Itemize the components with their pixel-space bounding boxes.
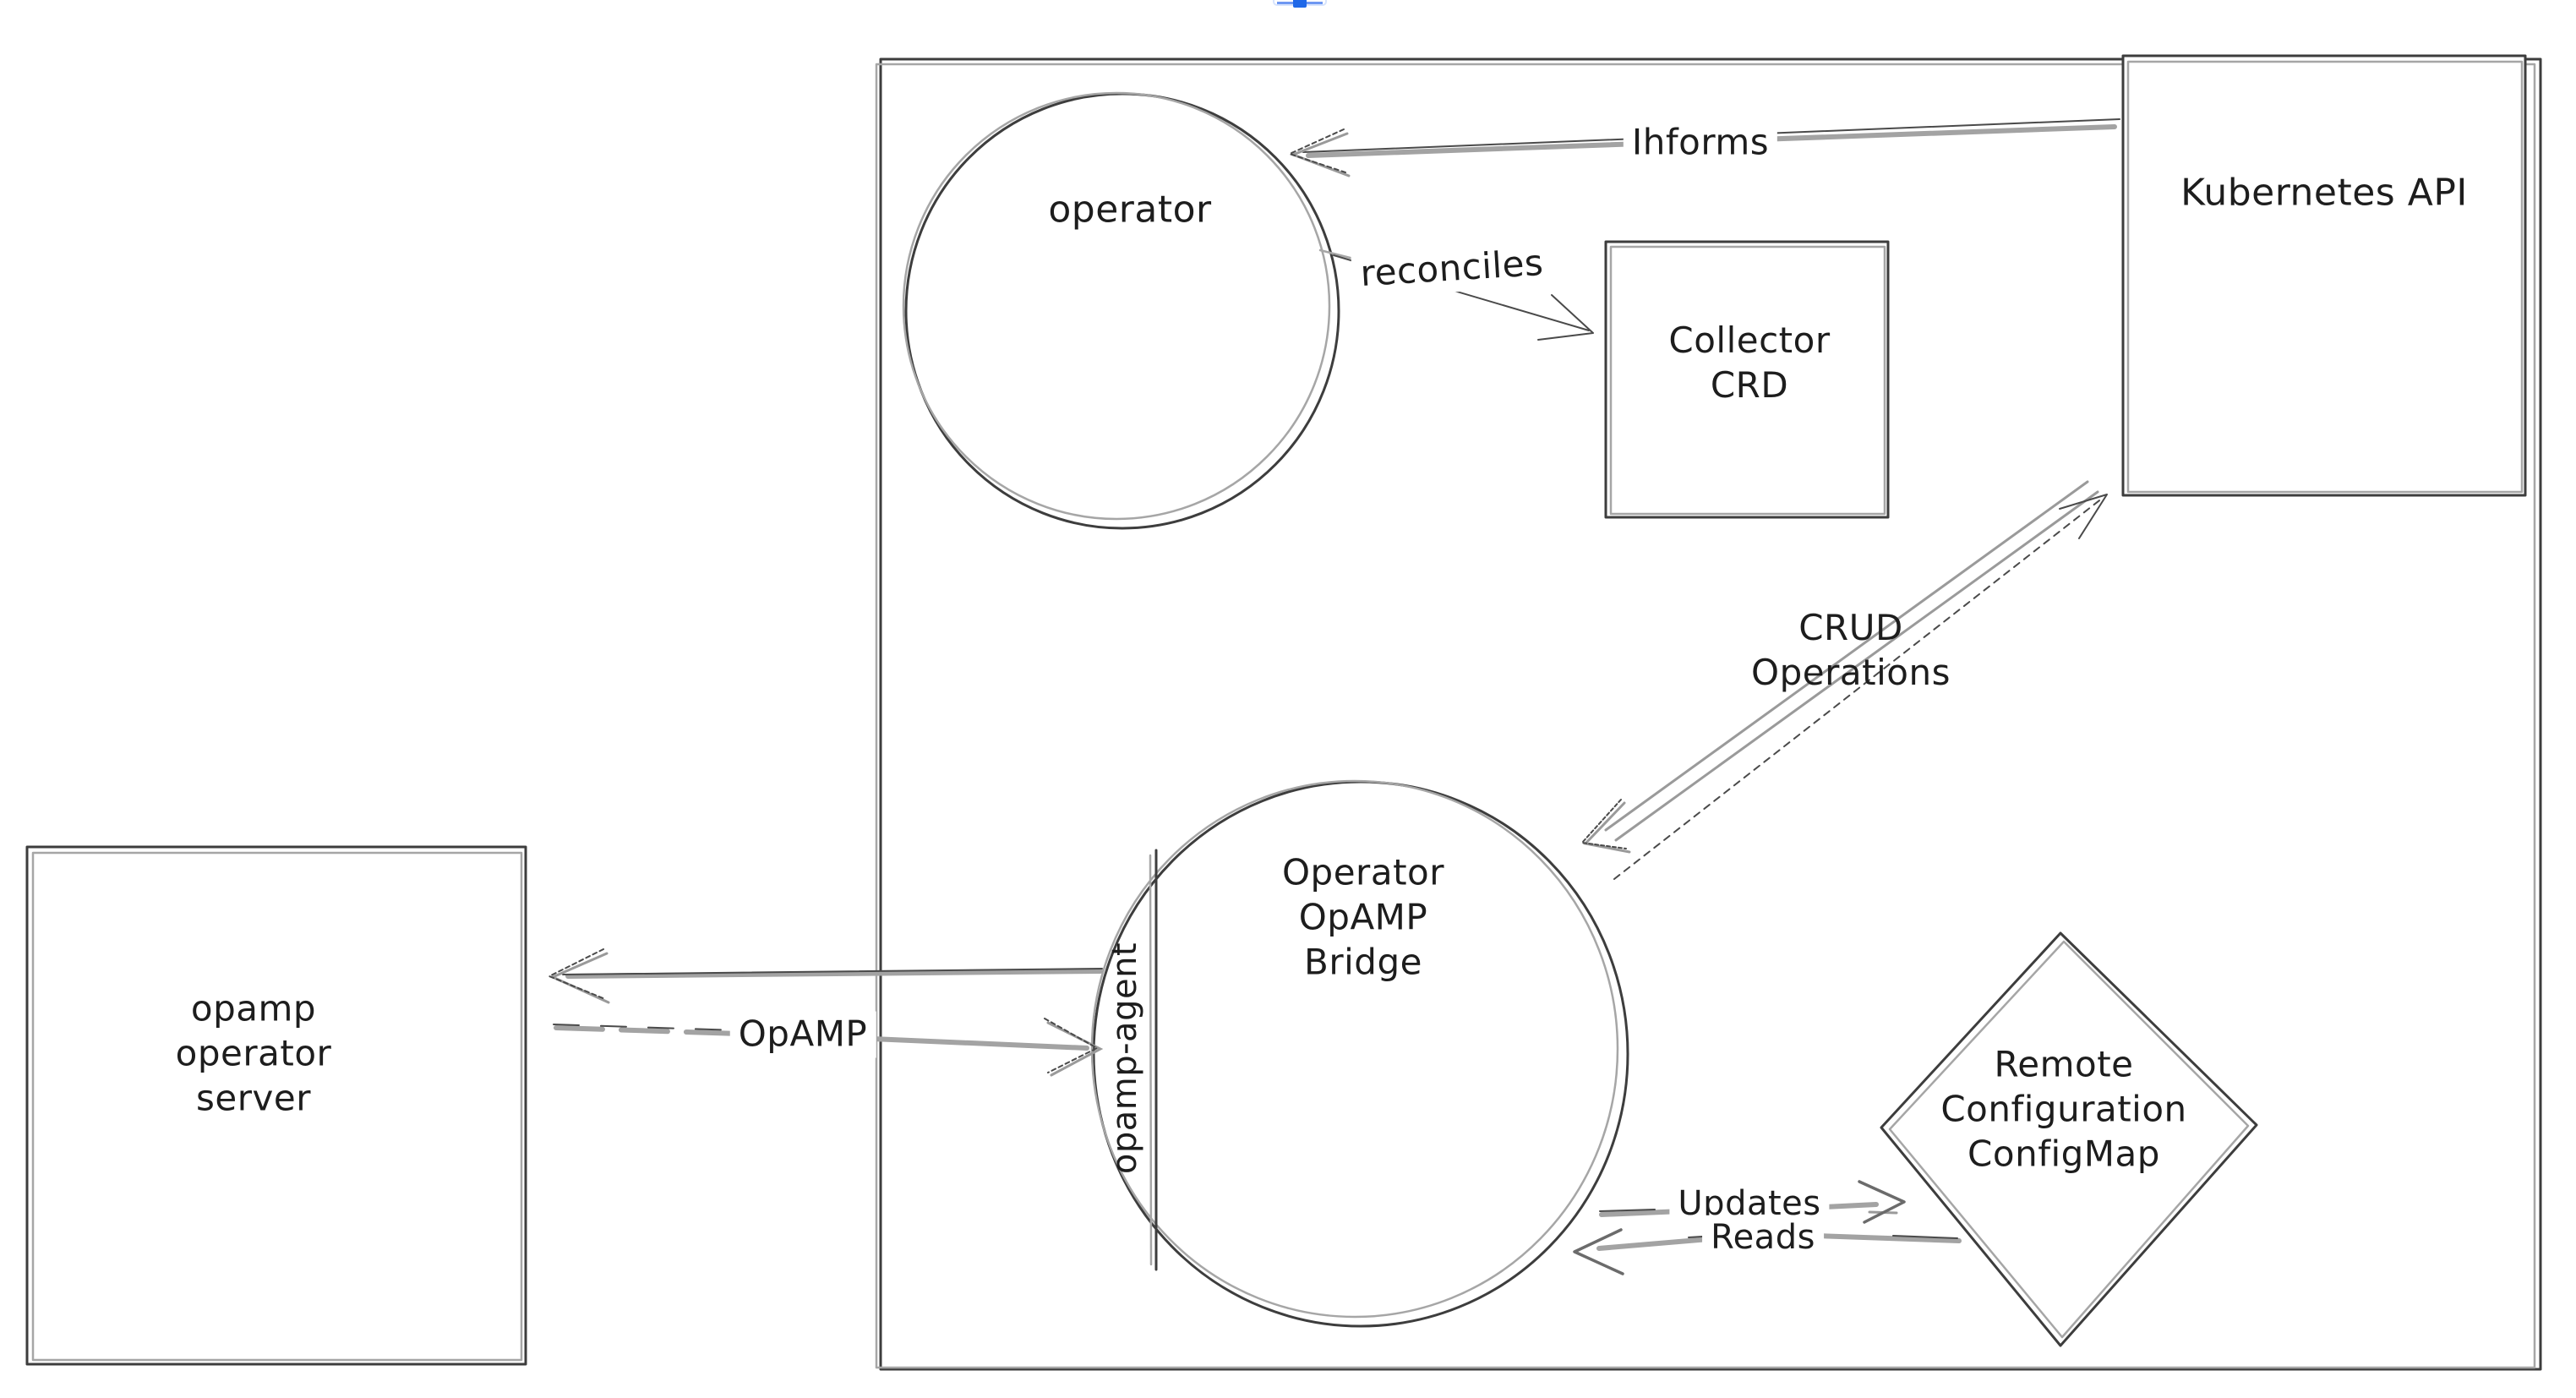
operator-label: operator: [1048, 186, 1211, 232]
opamp-server-label: opamp operator server: [176, 987, 332, 1122]
diagram-canvas: operator Collector CRD Kubernetes API Op…: [0, 0, 2576, 1398]
crud-edge-label-line1: CRUD: [1751, 606, 1951, 651]
reads-edge-label: Reads: [1702, 1215, 1824, 1259]
crud-edge-label: CRUD Operations: [1751, 606, 1951, 696]
kubernetes-api-box: [2123, 56, 2525, 495]
opamp-bridge-label-line3: Bridge: [1282, 940, 1444, 985]
collector-crd-label: Collector CRD: [1668, 319, 1830, 408]
collector-crd-label-line1: Collector: [1668, 319, 1830, 363]
opamp-agent-chord-gray: [1150, 855, 1151, 1264]
opamp-agent-label: opamp-agent: [1104, 942, 1146, 1174]
opamp-right-shaft-gray-2: [872, 1039, 1087, 1048]
opamp-bridge-label: Operator OpAMP Bridge: [1282, 851, 1444, 986]
remote-configmap-label-line1: Remote: [1940, 1043, 2186, 1088]
remote-configmap-label: Remote Configuration ConfigMap: [1940, 1043, 2186, 1177]
opamp-server-label-line2: operator: [176, 1032, 332, 1077]
opamp-server-label-line1: opamp: [176, 987, 332, 1032]
kubernetes-api-rect: [2123, 56, 2525, 495]
opamp-bridge-label-line1: Operator: [1282, 851, 1444, 896]
operator-circle: [903, 93, 1339, 528]
opamp-bridge-label-line2: OpAMP: [1282, 896, 1444, 941]
collector-crd-label-line2: CRD: [1668, 363, 1830, 408]
remote-configmap-label-line2: Configuration: [1940, 1088, 2186, 1133]
opamp-server-label-line3: server: [176, 1076, 332, 1121]
reads-shaft-gray-left: [1599, 1239, 1709, 1248]
clipped-blue-slider-widget[interactable]: [1273, 0, 1327, 6]
remote-configmap-label-line3: ConfigMap: [1940, 1132, 2186, 1177]
updates-shaft-gray-right: [1824, 1204, 1876, 1207]
reads-shaft-dark-left: [1689, 1237, 1702, 1237]
reads-arrowhead: [1575, 1230, 1623, 1274]
crud-edge-label-line2: Operations: [1751, 651, 1951, 696]
opamp-edge-label: OpAMP: [730, 1012, 876, 1058]
updates-arrowhead: [1859, 1182, 1904, 1222]
informs-edge-label: Ihforms: [1624, 120, 1777, 167]
kubernetes-api-label: Kubernetes API: [2180, 169, 2468, 216]
blue-slider-handle[interactable]: [1293, 0, 1307, 8]
operator-ellipse: [906, 94, 1339, 528]
